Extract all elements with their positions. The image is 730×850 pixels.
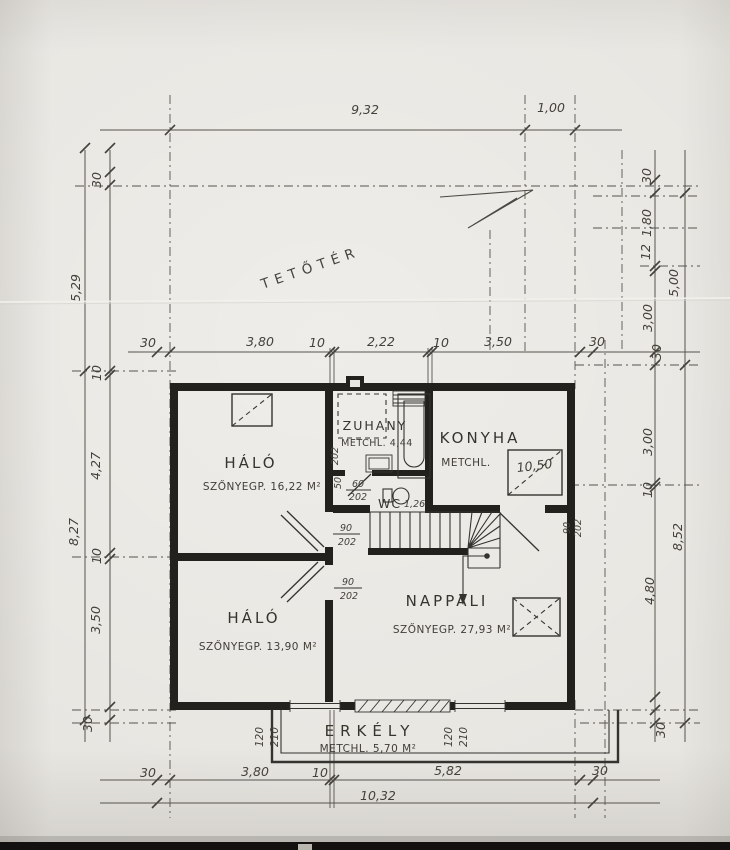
floor-label-living: SZŐNYEGP. 27,93 M² (393, 622, 511, 636)
dim-right-inner-1: 1,80 (639, 209, 654, 237)
door-size-bedroom-upper-height: 202 (338, 537, 356, 548)
dim-bottom-4: 30 (592, 763, 608, 778)
dim-top-total: 9,32 (351, 102, 379, 117)
stair-winders (468, 512, 500, 568)
dim-right-inner-5: 3,00 (640, 428, 655, 456)
dim-upper-5: 3,50 (484, 334, 512, 349)
dimension-lines-layer (72, 95, 700, 818)
room-label-shower: ZUHANY (343, 418, 408, 433)
living-room-furniture-box (513, 598, 560, 636)
dim-upper-0: 30 (140, 335, 156, 350)
door-size-kitchen-height: 202 (573, 519, 584, 537)
dim-wc-wall: 50 (333, 477, 344, 489)
wall-left (170, 383, 178, 710)
washbasin (366, 455, 392, 472)
dim-right-inner-2: 12 (638, 244, 653, 260)
dim-bottom-total: 10,32 (360, 788, 396, 803)
dim-right-inner-4: 30 (649, 344, 664, 360)
door-leaf-bedroom-lower (281, 562, 324, 602)
dim-upper-1: 3,80 (246, 334, 274, 349)
stair-cut-bar (368, 548, 468, 555)
room-label-balcony: ERKÉLY (325, 721, 416, 740)
dim-left-inner-2: 4,27 (88, 452, 103, 480)
wall-bottom-seg3 (450, 702, 455, 710)
room-label-bedroom-lower: HÁLÓ (227, 608, 280, 627)
door-size-bedroom-lower-height: 202 (340, 591, 358, 602)
wall-between-bedrooms (178, 553, 325, 561)
dim-left-inner-1: 10 (89, 365, 104, 381)
window-parapet-hatch (355, 700, 450, 712)
scan-edge-bar (0, 842, 730, 850)
wall-bottom-seg2 (340, 702, 355, 710)
wall-wc-top-seg1 (333, 470, 345, 476)
door-size-balcony-right-width: 120 (443, 727, 455, 747)
door-leaf-kitchen (500, 513, 539, 551)
bedroom-upper-furniture-box (232, 394, 272, 426)
scan-shadow-band (0, 836, 730, 843)
dim-left-inner-0: 30 (89, 172, 104, 188)
floorplan-drawing: TETŐTÉR HÁLÓ SZŐNYEGP. 16,22 M² HÁLÓ SZŐ… (0, 0, 730, 850)
wall-right (567, 383, 575, 710)
dim-left-outer-1: 8,27 (66, 518, 81, 546)
wall-shower-kitchen (425, 391, 433, 513)
dim-right-outer-0: 5,00 (666, 269, 681, 297)
dim-right-inner-8: 30 (653, 722, 668, 738)
dim-bottom-0: 30 (140, 765, 156, 780)
wall-kitchen-bottom-seg2 (545, 505, 567, 513)
dim-upper-4: 10 (433, 335, 449, 350)
dash-dot-axes (72, 95, 700, 818)
wall-interior-vertical-seg3 (325, 600, 333, 702)
scanned-floorplan-page: TETŐTÉR HÁLÓ SZŐNYEGP. 16,22 M² HÁLÓ SZŐ… (0, 0, 730, 850)
chimney-flue-hole (350, 380, 360, 387)
dim-left-inner-5: 30 (80, 716, 95, 732)
wall-corridor-stub (333, 505, 370, 513)
door-size-bedroom-upper-width: 90 (340, 523, 352, 534)
kitchen-counter-area-label: 10,50 (516, 456, 553, 475)
door-size-wc-height: 202 (349, 492, 367, 503)
wall-top (170, 383, 575, 391)
dim-right-inner-0: 30 (639, 168, 654, 184)
wall-bottom-seg4 (505, 702, 575, 710)
room-label-living: NAPPALI (406, 592, 489, 610)
door-size-balcony-right-height: 210 (458, 727, 470, 747)
dim-left-inner-4: 3,50 (88, 606, 103, 634)
door-size-kitchen-width: 90 (562, 522, 573, 534)
floor-label-bedroom-upper: SZŐNYEGP. 16,22 M² (203, 479, 321, 493)
wc-area-label: 1,26 (404, 499, 425, 510)
wall-bottom-seg1 (170, 702, 290, 710)
floor-label-shower: METCHL. 4,44 (341, 438, 413, 449)
dim-top-overhang: 1,00 (537, 100, 565, 115)
dim-right-inner-6: 10 (640, 482, 655, 498)
door-size-balcony-left-height: 210 (269, 727, 281, 747)
room-label-bedroom-upper: HÁLÓ (224, 453, 277, 472)
dim-right-outer-1: 8,52 (670, 523, 685, 551)
door-size-bedroom-lower-width: 90 (342, 577, 354, 588)
dim-left-inner-3: 10 (89, 548, 104, 564)
roofline-diagonals (440, 190, 533, 228)
floor-label-bedroom-lower: SZŐNYEGP. 13,90 M² (199, 639, 317, 653)
door-size-balcony-left-width: 120 (254, 727, 266, 747)
door-leaf-bedroom-upper (281, 511, 324, 551)
door-size-shower-height: 202 (330, 447, 341, 465)
dim-left-outer-0: 5,29 (68, 274, 83, 302)
dim-upper-2: 10 (309, 335, 325, 350)
dim-bottom-3: 5,82 (434, 763, 462, 778)
dim-upper-3: 2,22 (367, 334, 395, 349)
dim-right-inner-7: 4,80 (642, 577, 657, 605)
attic-zone-label: TETŐTÉR (257, 242, 362, 293)
dim-right-inner-3: 3,00 (640, 304, 655, 332)
dim-upper-6: 30 (589, 334, 605, 349)
room-label-kitchen: KONYHA (440, 429, 521, 447)
balcony-door-sills (290, 700, 505, 712)
dim-bottom-1: 3,80 (241, 764, 269, 779)
door-size-wc-width: 60 (352, 479, 364, 490)
room-label-wc: WC (378, 496, 401, 511)
floor-label-balcony: METCHL. 5,70 M² (320, 743, 417, 755)
dim-bottom-2: 10 (312, 765, 328, 780)
floor-label-kitchen: METCHL. (441, 457, 490, 469)
scan-edge-notch (298, 844, 312, 850)
wall-interior-vertical-seg2 (325, 547, 333, 565)
labels-layer: TETŐTÉR HÁLÓ SZŐNYEGP. 16,22 M² HÁLÓ SZŐ… (66, 100, 685, 803)
